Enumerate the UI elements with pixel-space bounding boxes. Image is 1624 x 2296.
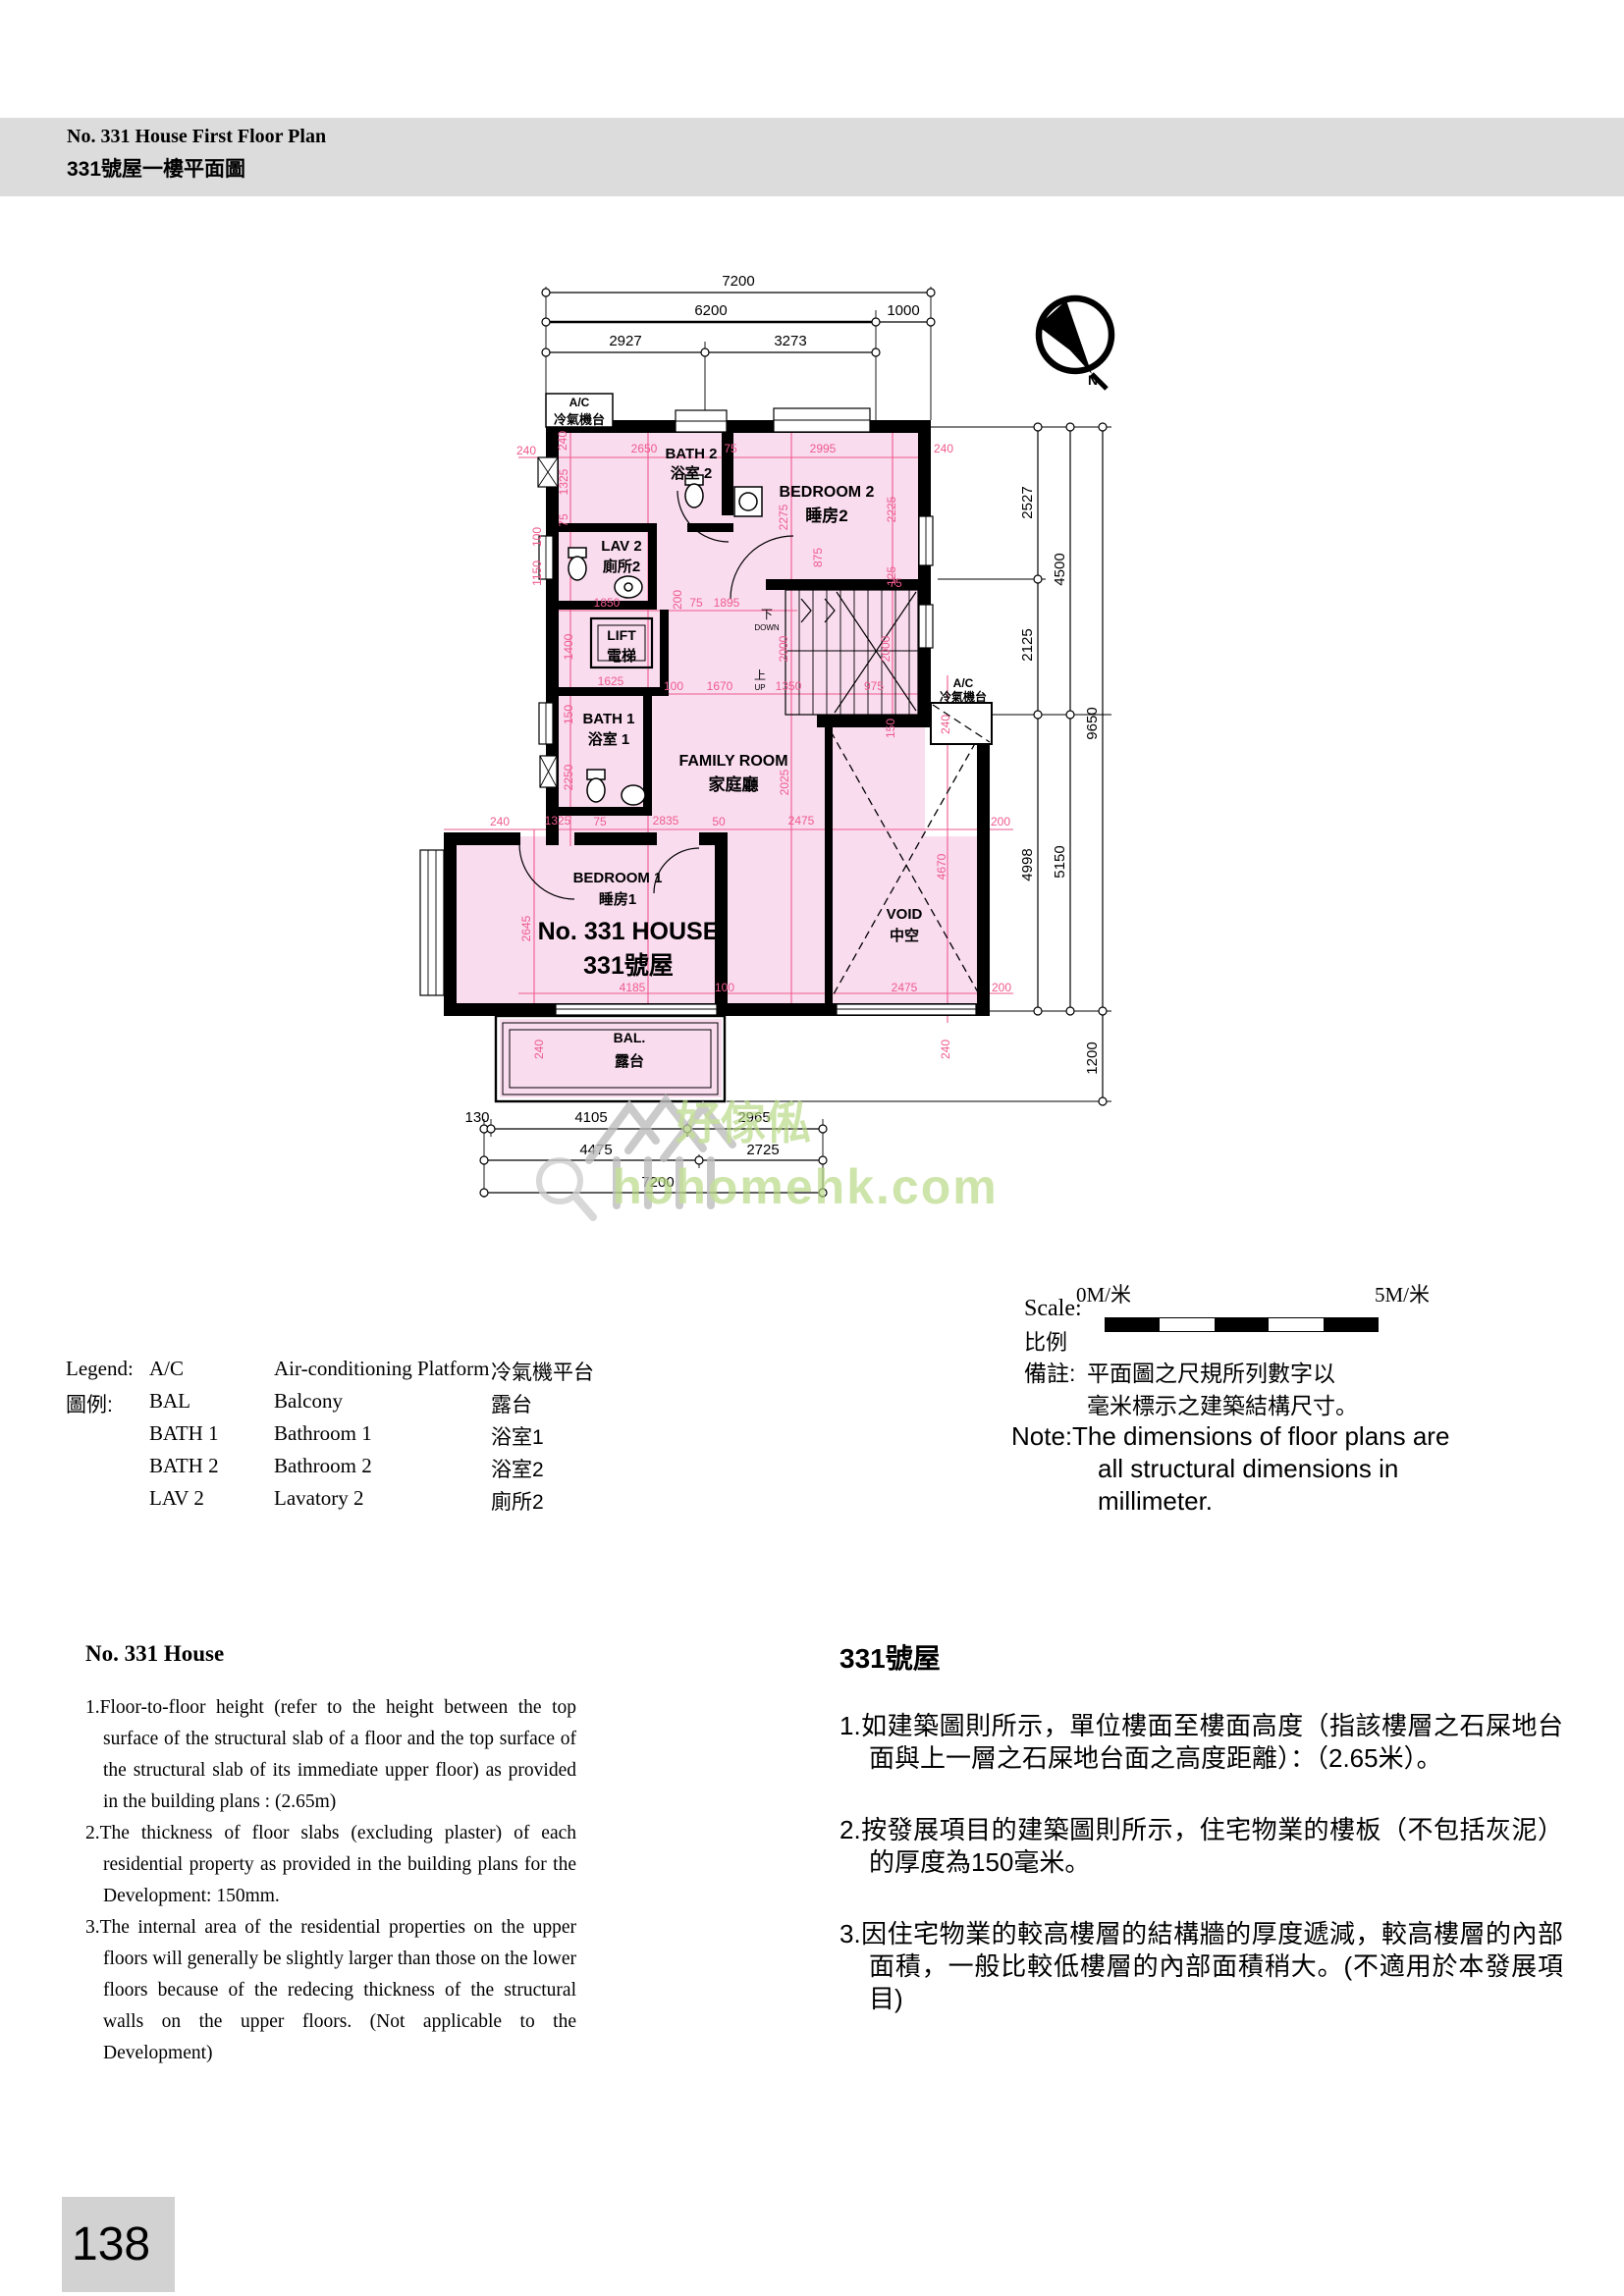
- dimension-label: 200: [992, 981, 1011, 994]
- note-item: 1.Floor-to-floor height (refer to the he…: [85, 1692, 576, 1818]
- legend-desc-zh: 廁所2: [491, 1486, 544, 1516]
- room-label-en: BEDROOM 2: [780, 484, 875, 501]
- dimension-label: 1670: [707, 679, 733, 693]
- note-prefix-en: Note:: [1011, 1421, 1072, 1452]
- watermark-magnifier-icon: [539, 1160, 593, 1217]
- room-label-zh: 電梯: [607, 647, 636, 665]
- room-label-en: A/C: [569, 396, 590, 409]
- dimension-label: 240: [556, 431, 569, 451]
- house-title-en: No. 331 HOUSE: [538, 918, 720, 945]
- dimension-label: 4500: [1052, 553, 1068, 585]
- room-label-zh: 中空: [890, 927, 919, 944]
- dimension-label: 1625: [598, 674, 624, 688]
- dimension-label: 1325: [557, 468, 570, 495]
- legend-desc-zh: 露台: [491, 1389, 532, 1418]
- dimension-label: 1350: [776, 679, 802, 693]
- dimension-label: 75: [889, 576, 902, 590]
- room-label-zh: 冷氣機台: [554, 412, 605, 427]
- room-label-en: VOID: [887, 906, 923, 923]
- dimension-label: 975: [864, 679, 884, 693]
- legend-desc-zh: 浴室2: [491, 1454, 544, 1483]
- legend-desc-en: Bathroom 1: [274, 1421, 372, 1446]
- note-line-en: The dimensions of floor plans are: [1072, 1421, 1449, 1452]
- room-label-zh: 睡房2: [805, 506, 847, 525]
- legend-desc-zh: 浴室1: [491, 1421, 544, 1451]
- room-label-en: LAV 2: [601, 538, 641, 555]
- scale-label-en: Scale:: [1024, 1296, 1082, 1322]
- dimension-label: 130: [464, 1109, 489, 1126]
- dimension-label: 5150: [1052, 845, 1068, 878]
- room-label-en: A/C: [953, 676, 974, 690]
- room-label-en: BATH 2: [665, 446, 717, 462]
- dimension-label: 4185: [620, 981, 646, 994]
- legend-title-en: Legend:: [66, 1357, 134, 1381]
- scale-zero-label: 0M/米: [1076, 1279, 1131, 1308]
- note-line-en: millimeter.: [1098, 1486, 1213, 1517]
- dimension-label: 240: [532, 1040, 546, 1059]
- scale-bar: [1105, 1317, 1379, 1332]
- room-label-zh: 浴室 2: [671, 464, 713, 482]
- legend-abbr: BAL: [149, 1389, 190, 1414]
- legend-title-zh: 圖例:: [66, 1389, 113, 1418]
- note-item: 1.如建築圖則所示，單位樓面至樓面高度（指該樓層之石屎地台面與上一層之石屎地台面…: [839, 1710, 1563, 1775]
- note-item: 3.The internal area of the residential p…: [85, 1912, 576, 2069]
- dimension-label: 6200: [694, 302, 727, 319]
- dimension-label: 100: [664, 679, 683, 693]
- dimension-label: 150: [884, 719, 897, 738]
- dimension-label: 2475: [788, 814, 815, 828]
- dimension-label: 2995: [810, 442, 837, 455]
- room-label-zh: 睡房1: [599, 890, 636, 908]
- stair-down-en: DOWN: [754, 623, 780, 632]
- dimension-label: 2225: [885, 496, 898, 522]
- legend-desc-en: Balcony: [274, 1389, 343, 1414]
- watermark-text-url: hohomehk.com: [612, 1159, 998, 1214]
- legend-desc-en: Bathroom 2: [274, 1454, 372, 1478]
- room-label-en: LIFT: [607, 627, 636, 643]
- notes-en-heading: No. 331 House: [85, 1641, 576, 1667]
- dimension-label: 2275: [777, 504, 790, 530]
- dimension-label: 2835: [653, 814, 679, 828]
- dimension-label: 2645: [519, 915, 533, 941]
- remark-line-zh: 平面圖之尺規所列數字以: [1087, 1355, 1335, 1388]
- legend-desc-en: Lavatory 2: [274, 1486, 364, 1511]
- room-label-en: BATH 1: [582, 711, 634, 727]
- stair-up-en: UP: [754, 683, 765, 692]
- dimension-label: 1895: [714, 596, 740, 610]
- dimension-label: 75: [593, 815, 607, 828]
- dimension-label: 1200: [1084, 1041, 1101, 1074]
- dimension-label: 2000: [879, 635, 893, 662]
- dimension-label: 2125: [1019, 628, 1036, 661]
- page-number-box: 138: [62, 2197, 175, 2292]
- scale-five-label: 5M/米: [1375, 1279, 1430, 1308]
- dimension-label: 240: [939, 715, 952, 734]
- legend-abbr: LAV 2: [149, 1486, 204, 1511]
- dimension-label: 100: [715, 981, 734, 994]
- remark-line-zh: 毫米標示之建築結構尺寸。: [1087, 1387, 1358, 1420]
- legend-abbr: BATH 2: [149, 1454, 219, 1478]
- brochure-page: No. 331 House First Floor Plan 331號屋一樓平面…: [0, 0, 1624, 2296]
- note-item: 2.按發展項目的建築圖則所示，住宅物業的樓板（不包括灰泥）的厚度為150毫米。: [839, 1814, 1563, 1879]
- dimension-label: 4105: [574, 1109, 607, 1126]
- scale-label-zh: 比例: [1024, 1325, 1067, 1357]
- dimension-label: 4998: [1019, 848, 1036, 881]
- dimension-label: 2025: [778, 769, 791, 795]
- notes-english: No. 331 House 1.Floor-to-floor height (r…: [85, 1641, 576, 2069]
- dimension-label: 150: [562, 705, 575, 724]
- dimension-label: 1000: [887, 302, 919, 319]
- dimension-label: 2475: [892, 981, 918, 994]
- dimension-label: 1325: [545, 814, 571, 828]
- note-item: 2.The thickness of floor slabs (excludin…: [85, 1818, 576, 1912]
- room-label-en: FAMILY ROOM: [678, 753, 787, 770]
- room-label-en: BAL.: [614, 1030, 646, 1045]
- room-label-zh: 浴室 1: [588, 730, 630, 748]
- dimension-label: 200: [671, 590, 684, 610]
- room-label-zh: 冷氣機台: [940, 689, 987, 704]
- dimension-label: 9650: [1084, 707, 1101, 739]
- dimension-label: 75: [557, 513, 570, 527]
- room-label-zh: 露台: [615, 1052, 644, 1070]
- dimension-label: 7200: [722, 273, 754, 290]
- dimension-label: 1150: [530, 561, 544, 586]
- remark-prefix-zh: 備註:: [1024, 1355, 1075, 1388]
- dimension-label: 1850: [594, 596, 621, 610]
- note-item: 3.因住宅物業的較高樓層的結構牆的厚度遞減，較高樓層的內部面積，一般比較低樓層的…: [839, 1918, 1563, 2015]
- legend-abbr: A/C: [149, 1357, 184, 1381]
- dimension-label: 2000: [777, 635, 790, 662]
- page-number: 138: [72, 2217, 150, 2271]
- dimension-label: 1400: [562, 633, 575, 660]
- notes-chinese: 331號屋 1.如建築圖則所示，單位樓面至樓面高度（指該樓層之石屎地台面與上一層…: [839, 1637, 1563, 2055]
- room-label-zh: 家庭廳: [709, 774, 759, 794]
- dimension-label: 4670: [935, 853, 948, 880]
- house-title-zh: 331號屋: [583, 952, 674, 980]
- stair-down-zh: 下: [761, 608, 773, 621]
- notes-zh-heading: 331號屋: [839, 1637, 1563, 1677]
- dimension-label: 240: [490, 815, 510, 828]
- dimension-label: 240: [516, 444, 536, 457]
- dimension-label: 2650: [631, 442, 658, 455]
- legend-abbr: BATH 1: [149, 1421, 219, 1446]
- dimension-label: 2250: [562, 764, 575, 790]
- note-line-en: all structural dimensions in: [1098, 1454, 1398, 1484]
- dimension-label: 2927: [609, 333, 641, 349]
- dimension-label: 100: [530, 527, 544, 547]
- dimension-label: 75: [724, 442, 737, 455]
- room-label-zh: 廁所2: [603, 558, 640, 575]
- dimension-label: 875: [811, 548, 825, 567]
- legend-desc-en: Air-conditioning Platform: [274, 1357, 489, 1381]
- room-label-en: BEDROOM 1: [573, 870, 663, 886]
- dimension-label: 240: [934, 442, 953, 455]
- dimension-label: 50: [712, 815, 726, 828]
- north-label: N: [1088, 372, 1098, 388]
- legend-desc-zh: 冷氣機平台: [491, 1357, 594, 1386]
- dimension-label: 240: [939, 1040, 952, 1059]
- dimension-label: 75: [689, 596, 703, 610]
- dimension-label: 200: [991, 815, 1010, 828]
- dimension-label: 3273: [774, 333, 806, 349]
- watermark-text-cn: 好傢俬: [675, 1097, 811, 1148]
- north-arrow-icon: N: [1038, 298, 1111, 389]
- dimension-label: 2527: [1019, 486, 1036, 518]
- stair-up-zh: 上: [754, 668, 766, 682]
